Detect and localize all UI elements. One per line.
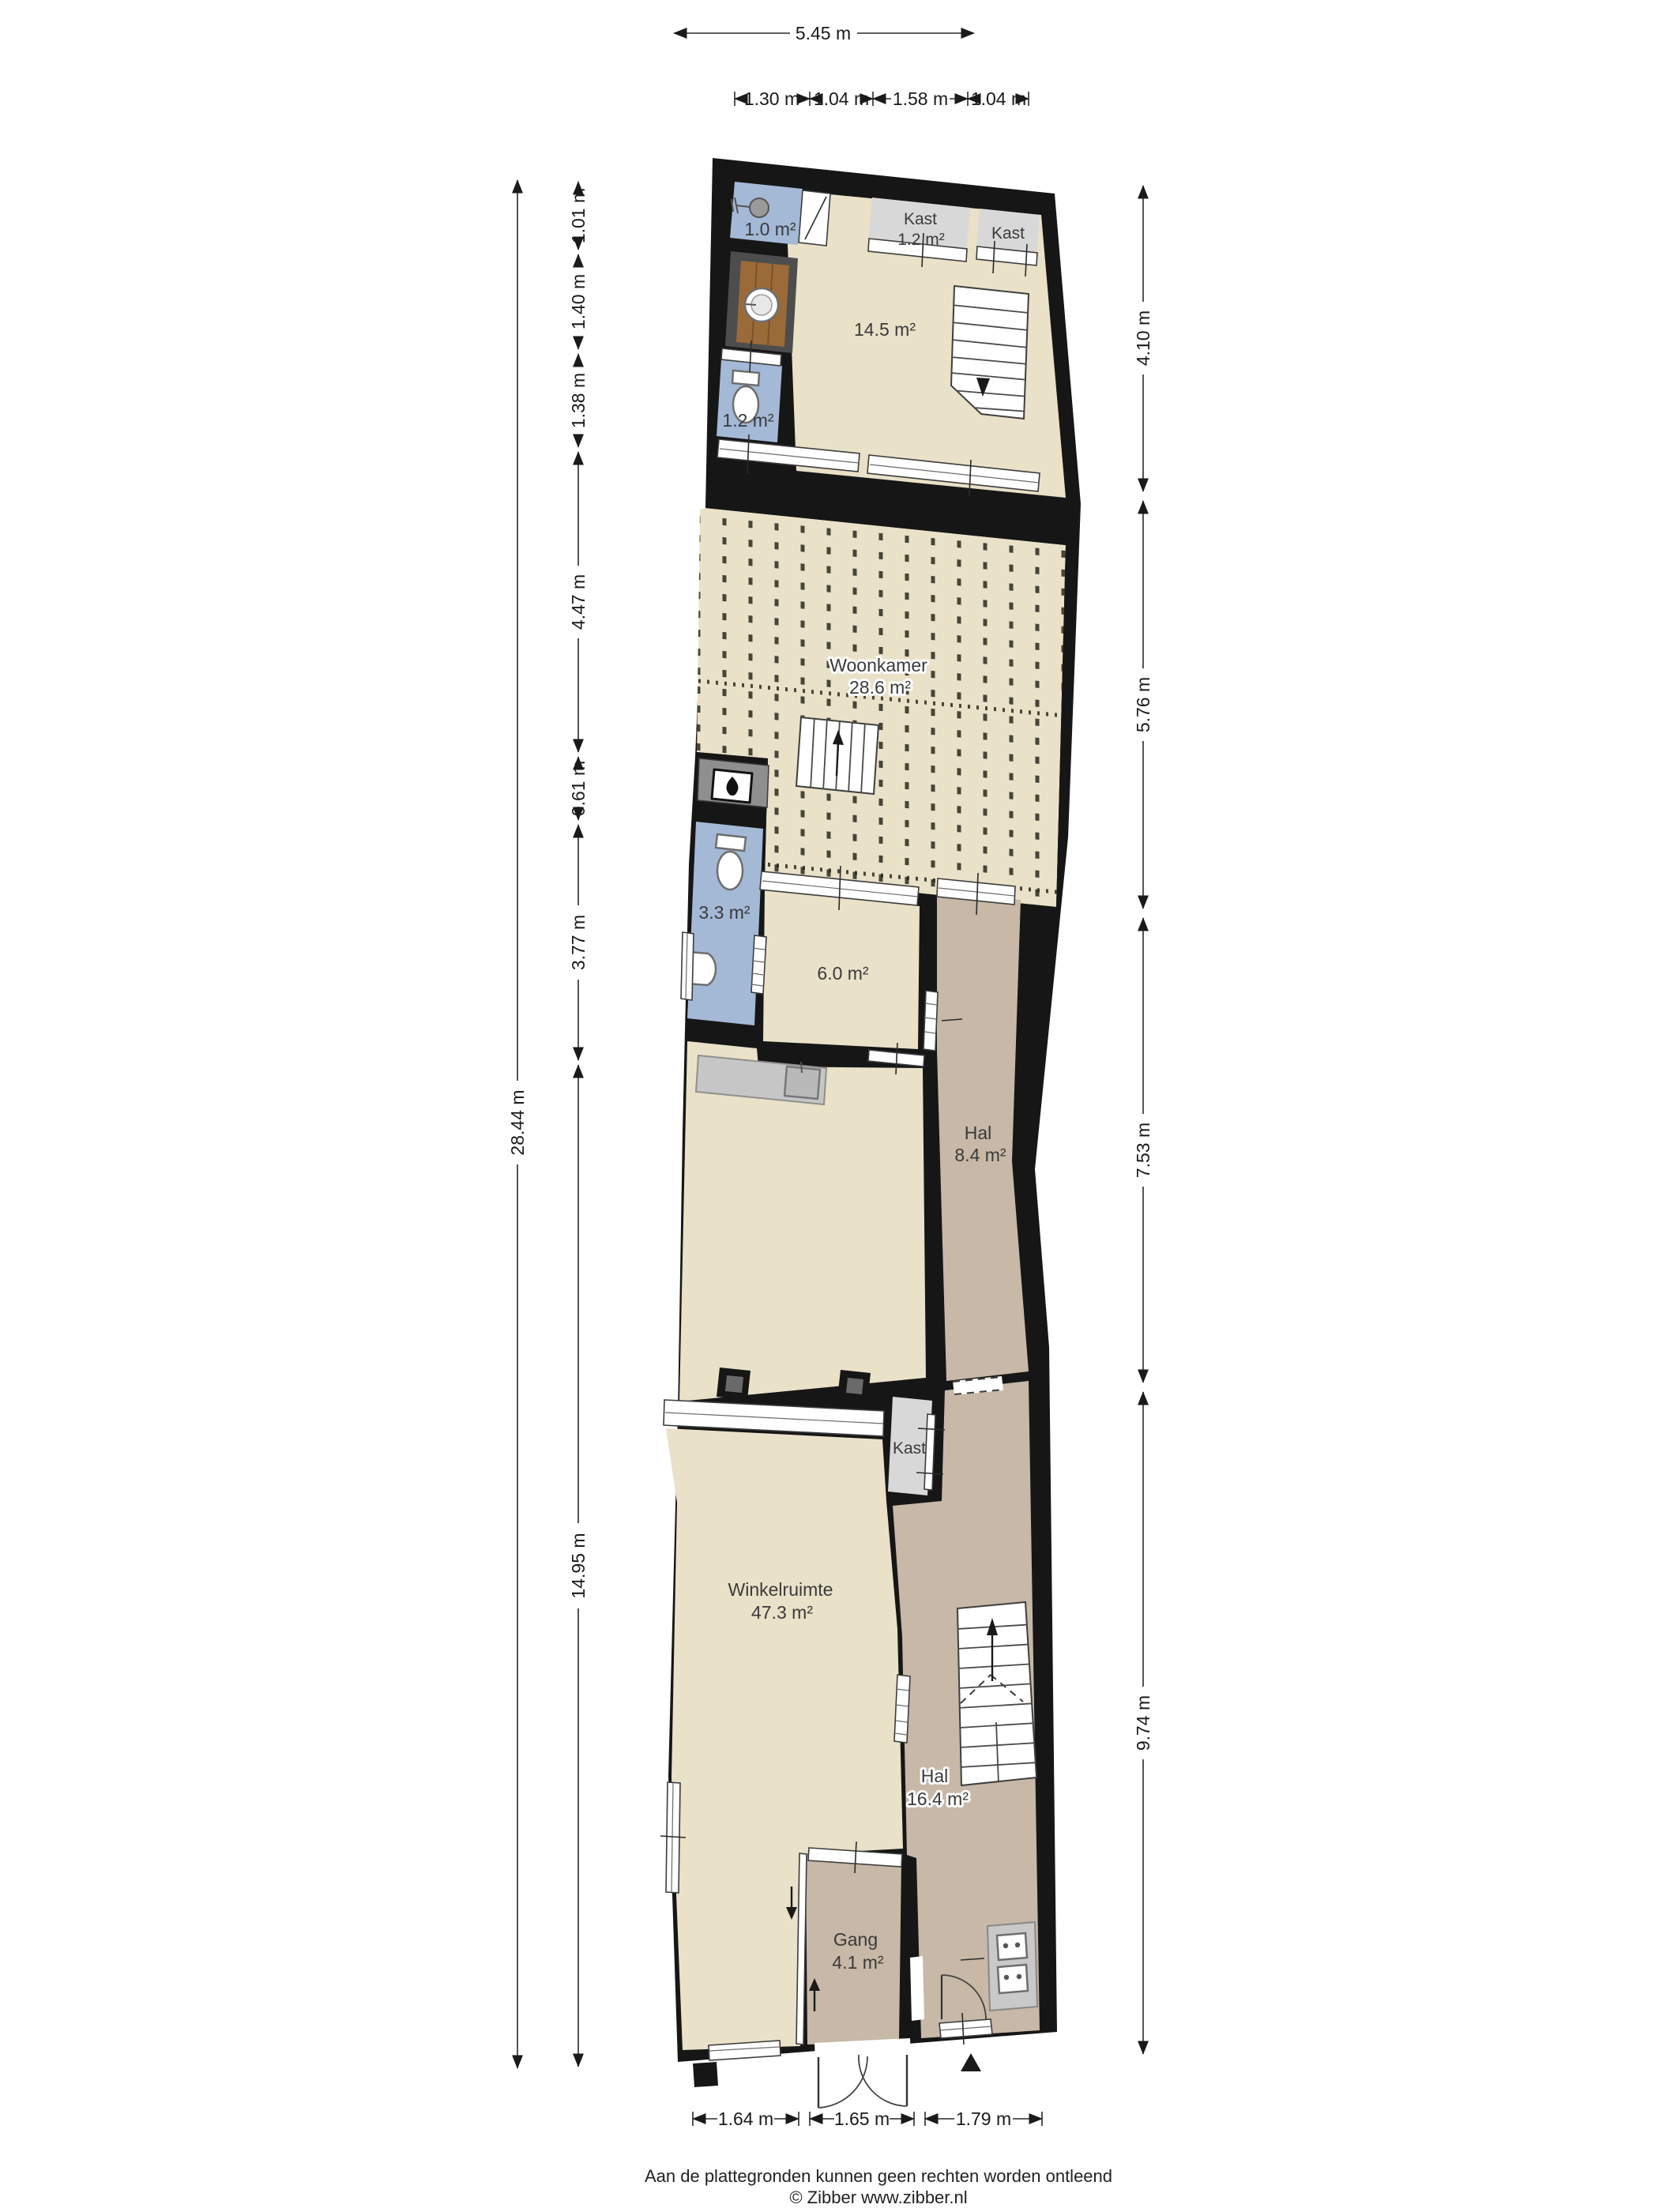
- dim-bottom-seg3: 1.79 m: [956, 2109, 1011, 2129]
- toilet-icon: [717, 852, 743, 890]
- meter-box-icon: [998, 1965, 1028, 1993]
- column-core: [725, 1375, 743, 1393]
- dim-left-seg4: 4.47 m: [568, 574, 589, 630]
- dim-left-seg6: 3.77 m: [568, 915, 589, 970]
- footer-disclaimer: Aan de plattegronden kunnen geen rechten…: [645, 2166, 1112, 2186]
- socket-dot: [1015, 1943, 1020, 1947]
- label-winkel-area: 47.3 m²: [751, 1602, 813, 1623]
- door-keuken-hal: [924, 991, 938, 1051]
- shower-head-icon: [750, 198, 769, 217]
- basin-tap-icon: [746, 304, 756, 305]
- dim-top-overall: 5.45 m: [674, 23, 974, 43]
- label-hal-beneden-area: 16.4 m²: [907, 1789, 969, 1809]
- label-winkel-name: Winkelruimte: [728, 1579, 833, 1600]
- stairs-low: [957, 1602, 1037, 1785]
- door-winkel-hal: [894, 1675, 910, 1743]
- dim-top-seg3: 1.58 m: [893, 88, 948, 109]
- dim-left-seg3: 1.38 m: [568, 373, 589, 428]
- dim-left-seg2: 1.40 m: [568, 274, 589, 329]
- corner-pilaster: [693, 2062, 718, 2087]
- bath-nook: [725, 251, 798, 353]
- label-kast1-area: 1.2 m²: [897, 231, 945, 249]
- label-hal-midden-name: Hal: [965, 1123, 992, 1143]
- dim-top-seg2: 1.04 m: [814, 88, 869, 109]
- toilet-tank: [716, 834, 746, 851]
- label-toilet-boven: 1.2 m²: [722, 410, 774, 431]
- label-douche: 1.0 m²: [744, 219, 796, 239]
- label-woonkamer-area: 28.6 m²: [849, 677, 911, 698]
- label-kast1-name: Kast: [904, 210, 937, 228]
- dim-left-overall: 28.44 m: [507, 180, 528, 2068]
- dim-bottom-seg1: 1.64 m: [718, 2109, 773, 2129]
- dim-right-seg4: 9.74 m: [1133, 1695, 1153, 1751]
- dim-left-seg5: 0.61 m: [568, 761, 589, 816]
- dim-left-segments: 1.01 m 1.40 m 1.38 m 4.47 m 0.61 m 3.77 …: [568, 182, 589, 2067]
- meter-box-icon: [997, 1933, 1027, 1960]
- label-hal-beneden-name: Hal: [921, 1766, 949, 1786]
- dim-right-seg3: 7.53 m: [1133, 1123, 1153, 1178]
- dim-top-seg1: 1.30 m: [744, 88, 799, 109]
- label-woonkamer-name: Woonkamer: [829, 655, 927, 675]
- dim-bottom-segments: 1.64 m 1.65 m 1.79 m: [693, 2109, 1042, 2129]
- dim-top-segments: 1.30 m 1.04 m 1.58 m 1.04 m: [735, 88, 1029, 109]
- dim-right-segments: 4.10 m 5.76 m 7.53 m 9.74 m: [1133, 186, 1153, 2054]
- column-core: [846, 1378, 863, 1394]
- dim-top-overall-label: 5.45 m: [796, 23, 851, 43]
- dim-left-seg7: 14.95 m: [568, 1533, 589, 1598]
- floorplan-page: 1.0 m² Kast 1.2 m² Kast 14.5 m² 1.2 m² W…: [0, 0, 1659, 2212]
- dim-left-overall-label: 28.44 m: [507, 1089, 528, 1155]
- dim-bottom-seg2: 1.65 m: [834, 2109, 890, 2129]
- dim-right-seg1: 4.10 m: [1133, 310, 1153, 366]
- toilet-tank: [732, 371, 759, 386]
- door-gang-hal-gap: [910, 1956, 924, 2021]
- building-plan: 1.0 m² Kast 1.2 m² Kast 14.5 m² 1.2 m² W…: [660, 158, 1081, 2108]
- label-gang-area: 4.1 m²: [832, 1952, 884, 1973]
- label-gang-name: Gang: [833, 1929, 878, 1950]
- door-swing-arc: [818, 2056, 867, 2108]
- dim-left-seg1: 1.01 m: [568, 188, 589, 243]
- socket-dot: [1017, 1974, 1021, 1979]
- stairs-mid: [796, 716, 878, 795]
- floorplan-svg: 1.0 m² Kast 1.2 m² Kast 14.5 m² 1.2 m² W…: [0, 0, 1659, 2212]
- dim-top-seg4: 1.04 m: [971, 88, 1026, 109]
- label-kast-beneden: Kast: [893, 1439, 926, 1458]
- label-hal-midden-area: 8.4 m²: [954, 1145, 1006, 1165]
- entrance-marker-icon: [961, 2053, 981, 2071]
- fireplace: [698, 758, 769, 807]
- footer: Aan de plattegronden kunnen geen rechten…: [645, 2166, 1112, 2207]
- socket-dot: [1004, 1975, 1009, 1980]
- socket-dot: [1003, 1943, 1008, 1948]
- label-overloop: 14.5 m²: [854, 319, 916, 340]
- label-kast2-name: Kast: [991, 224, 1025, 243]
- door-swing-arc: [859, 2055, 907, 2106]
- label-badkamer: 3.3 m²: [698, 902, 750, 923]
- dim-right-seg2: 5.76 m: [1133, 677, 1153, 732]
- sink-tap-icon: [801, 1062, 802, 1073]
- label-keuken: 6.0 m²: [817, 963, 869, 984]
- footer-credit: © Zibber www.zibber.nl: [789, 2188, 967, 2207]
